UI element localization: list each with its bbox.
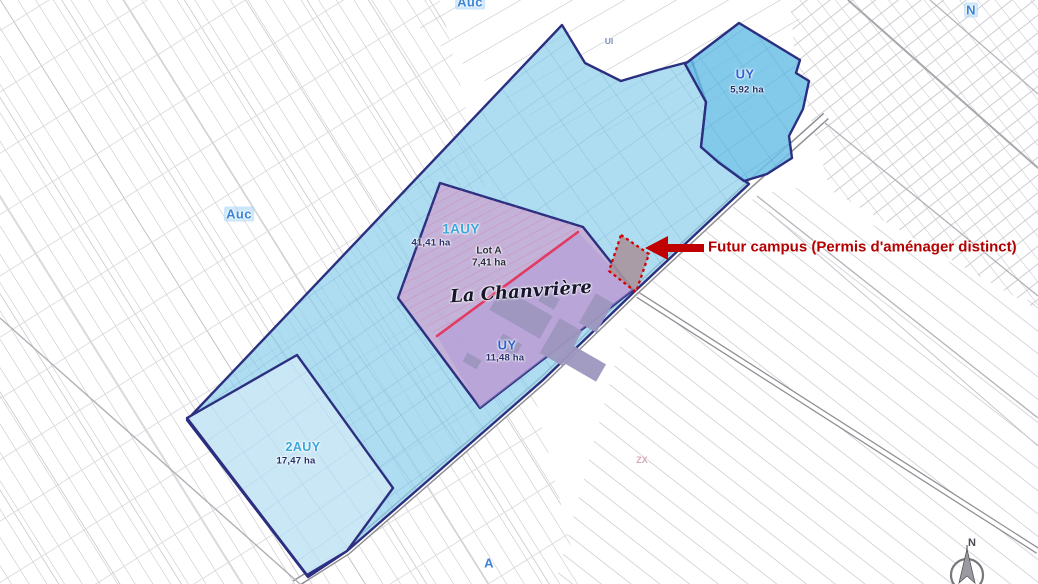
zone-a-bottom-label: A	[484, 556, 494, 571]
zone-1auy-area: 41,41 ha	[411, 238, 450, 249]
zone-ui-label: UI	[605, 36, 614, 46]
zone-uy-central-code: UY	[498, 338, 517, 353]
lot-a-code: Lot A	[476, 246, 501, 257]
zone-2auy-area: 17,47 ha	[276, 456, 315, 467]
zone-uy-north-code: UY	[736, 67, 755, 82]
zoning-map: Auc N UI Auc 1AUY 41,41 ha Lot A 7,41 ha…	[0, 0, 1038, 584]
zone-uy-central-area: 11,48 ha	[486, 353, 525, 364]
zone-auc-top-label: Auc	[455, 0, 485, 10]
zone-1auy-code: 1AUY	[442, 222, 480, 237]
zone-auc-left-label: Auc	[224, 207, 254, 222]
future-campus-annotation: Futur campus (Permis d'aménager distinct…	[708, 239, 1017, 256]
zone-uy-north-area: 5,92 ha	[730, 85, 764, 96]
north-letter-top: N	[964, 3, 978, 18]
zone-2auy-code: 2AUY	[286, 440, 321, 454]
lot-a-area: 7,41 ha	[472, 258, 506, 269]
zone-zx-label: ZX	[636, 455, 648, 465]
compass-north-letter: N	[968, 537, 976, 549]
